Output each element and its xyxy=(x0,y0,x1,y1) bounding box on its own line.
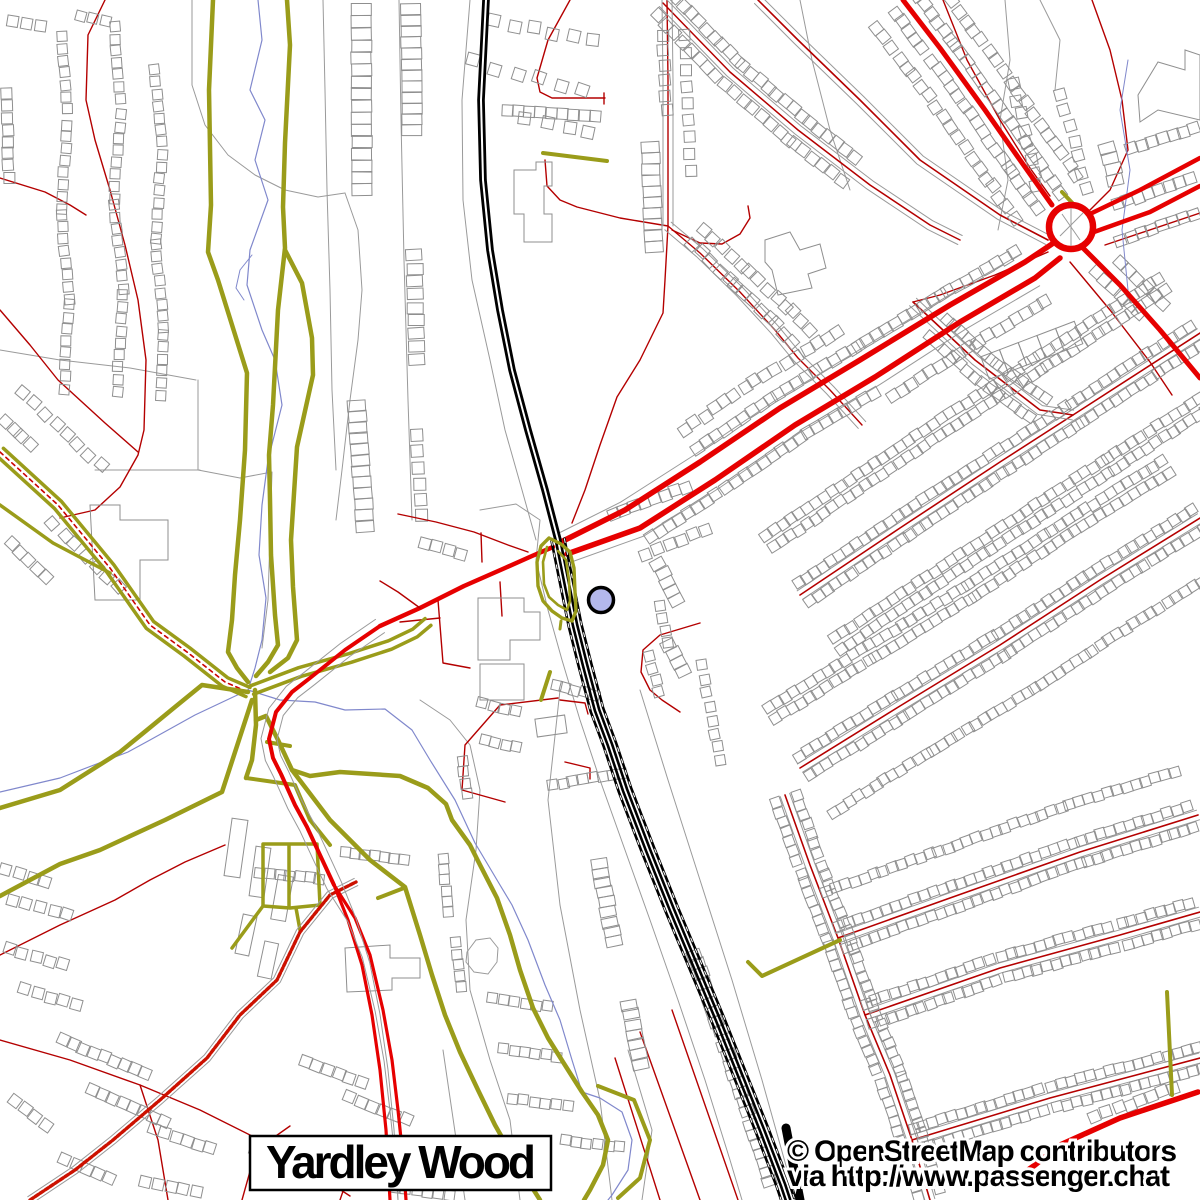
svg-text:via http://www.passenger.chat: via http://www.passenger.chat xyxy=(787,1160,1170,1193)
svg-text:Yardley Wood: Yardley Wood xyxy=(266,1136,536,1188)
